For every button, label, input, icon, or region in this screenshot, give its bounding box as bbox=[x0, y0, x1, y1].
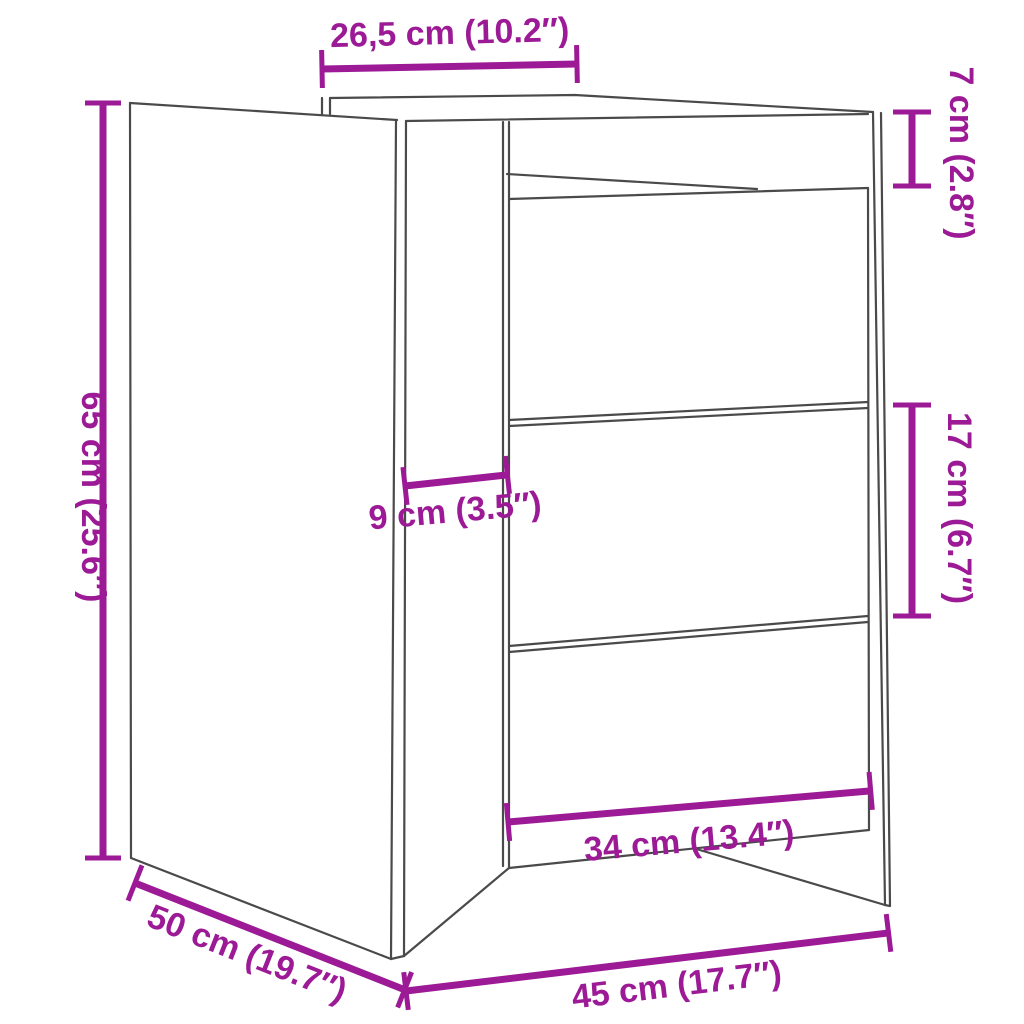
dim-label-top-section-height: 7 cm (2.8″) bbox=[942, 66, 980, 239]
dim-label-drawer-width: 34 cm (13.4″) bbox=[582, 813, 795, 869]
diagram-page: 26,5 cm (10.2″) 7 cm (2.8″) 65 cm (25.6″… bbox=[0, 0, 1024, 1024]
dim-label-top-depth: 26,5 cm (10.2″) bbox=[330, 11, 570, 55]
dimension-top-section-height: 7 cm (2.8″) bbox=[893, 66, 980, 239]
dim-label-drawer-height: 17 cm (6.7″) bbox=[940, 412, 978, 604]
cabinet-left-panel bbox=[130, 103, 509, 959]
dimension-drawer-width: 34 cm (13.4″) bbox=[506, 772, 872, 869]
cabinet-top-panel bbox=[322, 95, 873, 189]
dimension-overall-width: 45 cm (17.7″) bbox=[404, 914, 891, 1017]
dimension-overall-depth: 50 cm (19.7″) bbox=[128, 865, 412, 1010]
cabinet-right-panel bbox=[693, 112, 890, 906]
dim-label-overall-width: 45 cm (17.7″) bbox=[570, 954, 784, 1017]
dimension-drawer-height: 17 cm (6.7″) bbox=[893, 405, 978, 616]
dimension-diagram-canvas: 26,5 cm (10.2″) 7 cm (2.8″) 65 cm (25.6″… bbox=[0, 0, 1024, 1024]
dimension-overall-height: 65 cm (25.6″) bbox=[74, 103, 121, 858]
dim-label-overall-height: 65 cm (25.6″) bbox=[74, 392, 112, 603]
cabinet-drawer-stack bbox=[503, 122, 869, 868]
dimension-top-depth: 26,5 cm (10.2″) bbox=[322, 11, 578, 88]
